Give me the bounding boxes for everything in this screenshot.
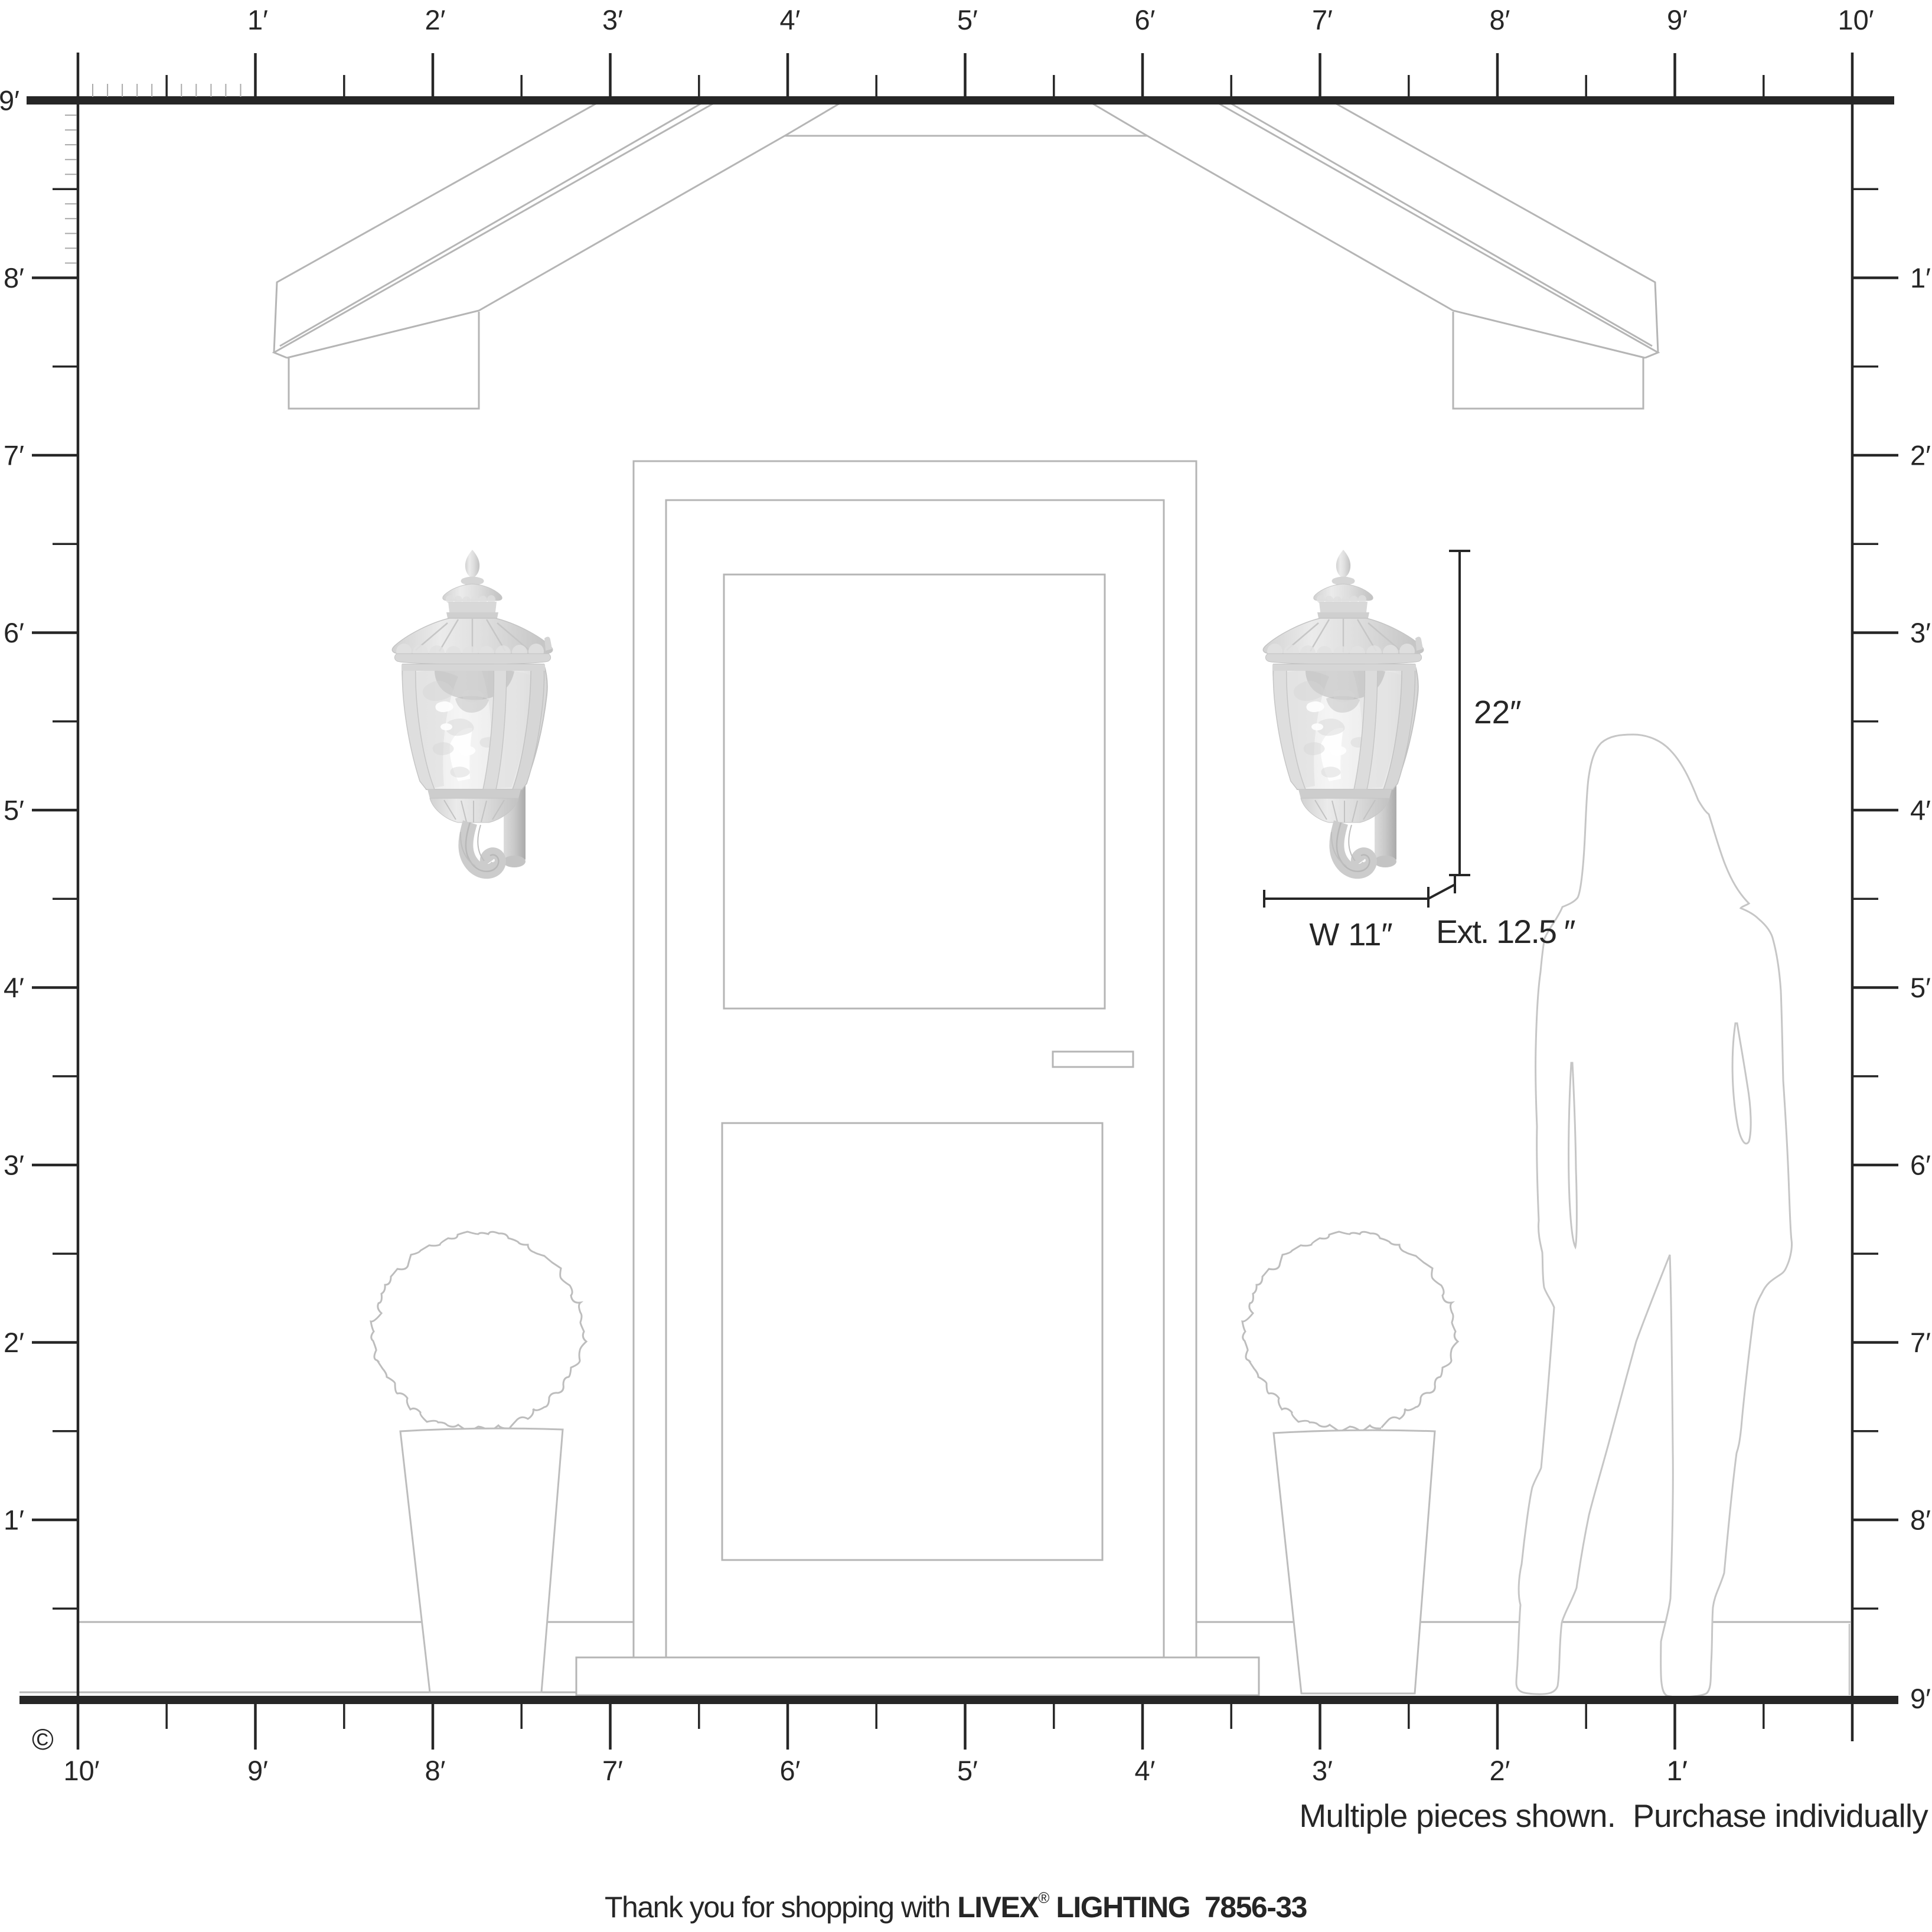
- svg-text:4′: 4′: [4, 972, 24, 1003]
- svg-text:8′: 8′: [4, 262, 24, 293]
- svg-text:5′: 5′: [957, 1755, 978, 1786]
- svg-text:22″: 22″: [1474, 694, 1522, 730]
- svg-text:8′: 8′: [425, 1755, 446, 1786]
- svg-text:2′: 2′: [1490, 1755, 1510, 1786]
- svg-text:W 11″: W 11″: [1309, 917, 1392, 952]
- svg-text:Thank you for shopping with LI: Thank you for shopping with LIVEX® LIGHT…: [605, 1889, 1307, 1924]
- svg-text:1′: 1′: [1910, 262, 1931, 293]
- svg-text:9′: 9′: [0, 85, 19, 116]
- svg-text:6′: 6′: [4, 617, 24, 648]
- svg-text:3′: 3′: [4, 1150, 24, 1181]
- svg-text:1′: 1′: [4, 1505, 24, 1536]
- svg-text:2′: 2′: [1910, 440, 1931, 471]
- svg-text:4′: 4′: [780, 4, 801, 35]
- svg-text:8′: 8′: [1490, 4, 1510, 35]
- svg-text:7′: 7′: [1910, 1327, 1931, 1358]
- svg-text:7′: 7′: [4, 440, 24, 471]
- svg-text:4′: 4′: [1910, 795, 1931, 826]
- svg-text:3′: 3′: [1312, 1755, 1333, 1786]
- svg-text:9′: 9′: [247, 1755, 268, 1786]
- svg-text:3′: 3′: [1910, 617, 1931, 648]
- svg-text:3′: 3′: [602, 4, 623, 35]
- svg-text:6′: 6′: [780, 1755, 801, 1786]
- svg-text:10′: 10′: [63, 1755, 99, 1786]
- svg-text:2′: 2′: [4, 1327, 24, 1358]
- svg-text:7′: 7′: [1312, 4, 1333, 35]
- svg-text:9′: 9′: [1910, 1683, 1931, 1714]
- svg-text:1′: 1′: [247, 4, 268, 35]
- svg-text:5′: 5′: [957, 4, 978, 35]
- svg-text:Ext. 12.5 ″: Ext. 12.5 ″: [1436, 913, 1575, 950]
- svg-text:4′: 4′: [1135, 1755, 1156, 1786]
- svg-text:10′: 10′: [1838, 4, 1874, 35]
- svg-text:5′: 5′: [4, 795, 24, 826]
- svg-text:6′: 6′: [1910, 1150, 1931, 1181]
- svg-text:©: ©: [32, 1723, 54, 1756]
- svg-text:1′: 1′: [1667, 1755, 1688, 1786]
- svg-text:5′: 5′: [1910, 972, 1931, 1003]
- svg-text:Multiple pieces shown. Purcha: Multiple pieces shown. Purchase individu…: [1299, 1797, 1928, 1834]
- svg-text:7′: 7′: [602, 1755, 623, 1786]
- svg-text:6′: 6′: [1135, 4, 1156, 35]
- svg-text:8′: 8′: [1910, 1505, 1931, 1536]
- svg-text:9′: 9′: [1667, 4, 1688, 35]
- svg-text:2′: 2′: [425, 4, 446, 35]
